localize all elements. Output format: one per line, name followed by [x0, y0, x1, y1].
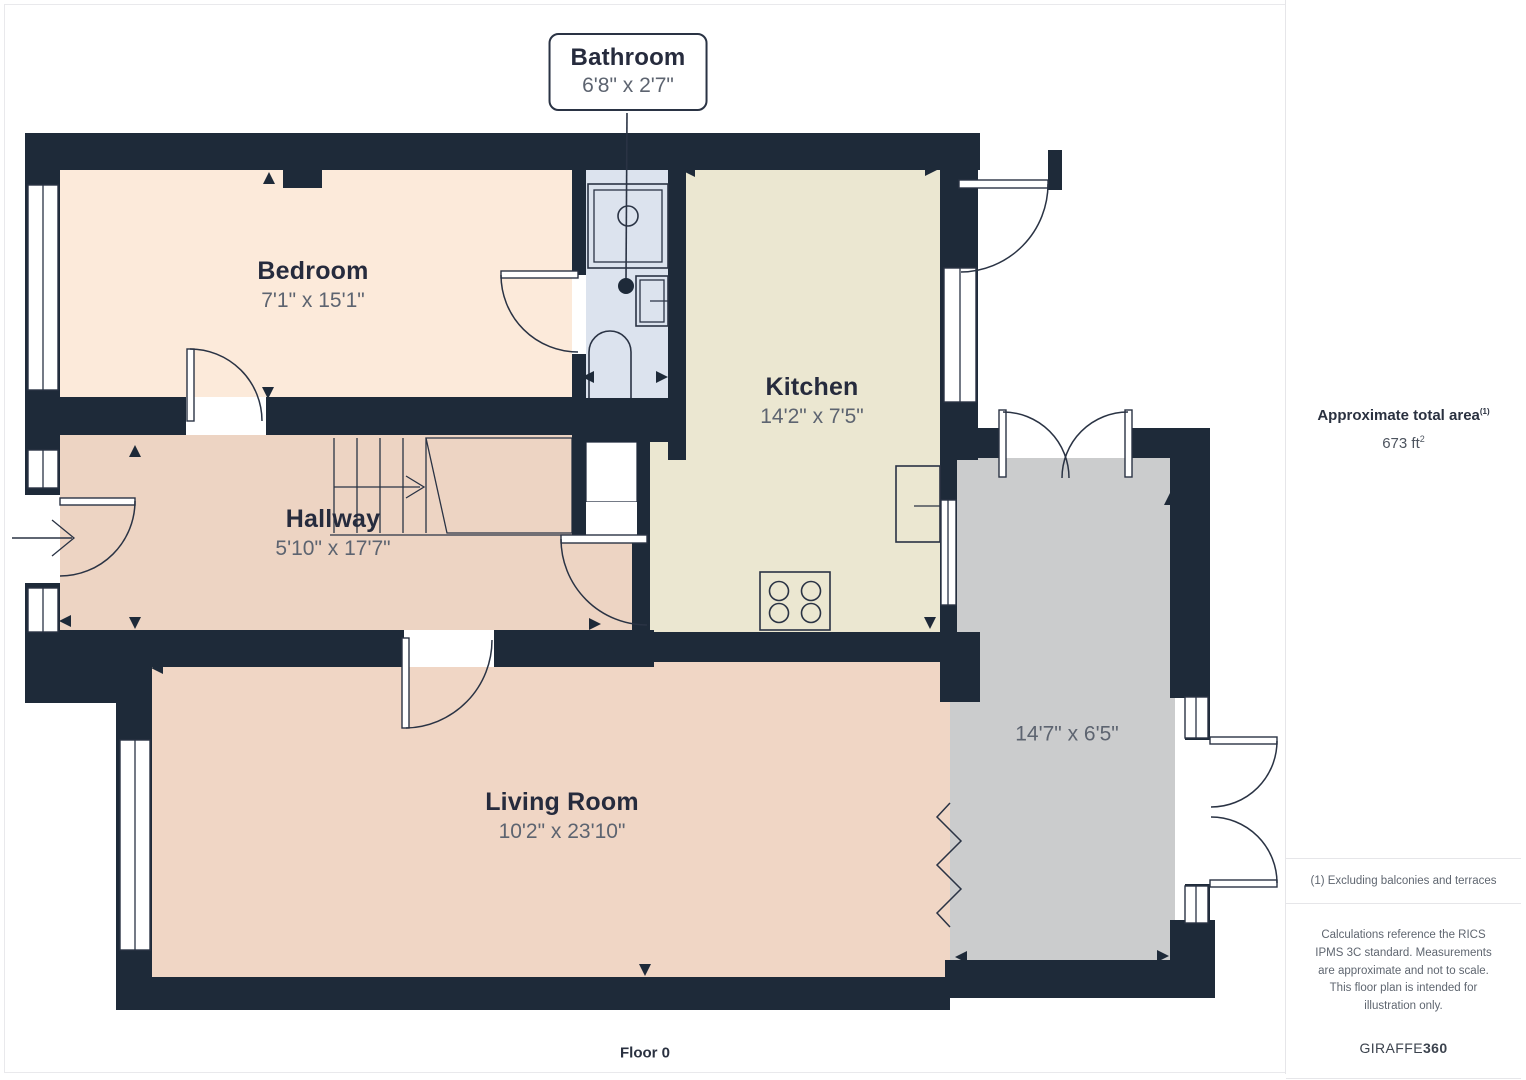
extension-window-upper [1185, 697, 1208, 738]
brand-logo: GIRAFFE360 [1306, 1038, 1501, 1060]
extension-dims: 14'7" x 6'5" [1015, 723, 1119, 747]
hallway-window-lower [28, 588, 58, 632]
living-room-dims: 10'2" x 23'10" [485, 820, 639, 844]
extension-floor [950, 458, 1175, 965]
info-sidebar: Approximate total area(1) 673 ft2 (1) Ex… [1285, 0, 1521, 1074]
living-room-label: Living Room 10'2" x 23'10" [485, 788, 639, 844]
extension-french-doors-east [1210, 737, 1277, 887]
bedroom-window [28, 185, 58, 390]
bedroom-dims: 7'1" x 15'1" [257, 289, 368, 313]
bedroom-name: Bedroom [257, 257, 368, 286]
brand-bold: 360 [1423, 1040, 1448, 1056]
disclaimer-text: Calculations reference the RICS IPMS 3C … [1306, 927, 1501, 1016]
living-room-window [120, 740, 150, 950]
floor-plan: Bathroom 6'8" x 2'7" Bedroom 7'1" x 15'1… [0, 0, 1285, 1080]
kitchen-window-right [944, 268, 976, 402]
bedroom-label: Bedroom 7'1" x 15'1" [257, 257, 368, 313]
room-floors [60, 170, 1175, 977]
hallway-name: Hallway [275, 505, 390, 534]
bathroom-callout-dims: 6'8" x 2'7" [571, 74, 686, 98]
bathroom-callout: Bathroom 6'8" x 2'7" [549, 33, 708, 111]
total-area-title: Approximate total area(1) [1317, 407, 1489, 424]
brand-regular: GIRAFFE [1359, 1040, 1422, 1056]
floor-plan-svg [0, 0, 1285, 1080]
extension-window-lower [1185, 886, 1208, 923]
closet-gap [586, 502, 637, 535]
hallway-label: Hallway 5'10" x 17'7" [275, 505, 390, 561]
disclaimer-box: Calculations reference the RICS IPMS 3C … [1286, 907, 1521, 1079]
total-area-value: 673 ft2 [1382, 434, 1425, 452]
bathroom-callout-name: Bathroom [571, 44, 686, 72]
living-room-name: Living Room [485, 788, 639, 817]
under-stair-closet [586, 442, 637, 502]
footnote-box: (1) Excluding balconies and terraces [1286, 858, 1521, 904]
total-area-section: Approximate total area(1) 673 ft2 [1286, 0, 1521, 858]
kitchen-dims: 14'2" x 7'5" [760, 405, 864, 429]
hallway-window-upper [28, 450, 58, 488]
total-area-value-text: 673 ft [1382, 435, 1420, 452]
floor-label: Floor 0 [620, 1045, 670, 1062]
kitchen-label: Kitchen 14'2" x 7'5" [760, 373, 864, 429]
total-area-title-superscript: (1) [1480, 407, 1490, 416]
extension-label: 14'7" x 6'5" [1015, 720, 1119, 747]
hallway-dims: 5'10" x 17'7" [275, 537, 390, 561]
total-area-title-text: Approximate total area [1317, 407, 1480, 424]
kitchen-name: Kitchen [760, 373, 864, 402]
shower [588, 184, 668, 268]
total-area-value-superscript: 2 [1420, 434, 1425, 444]
kitchen-extension-window [941, 500, 956, 605]
